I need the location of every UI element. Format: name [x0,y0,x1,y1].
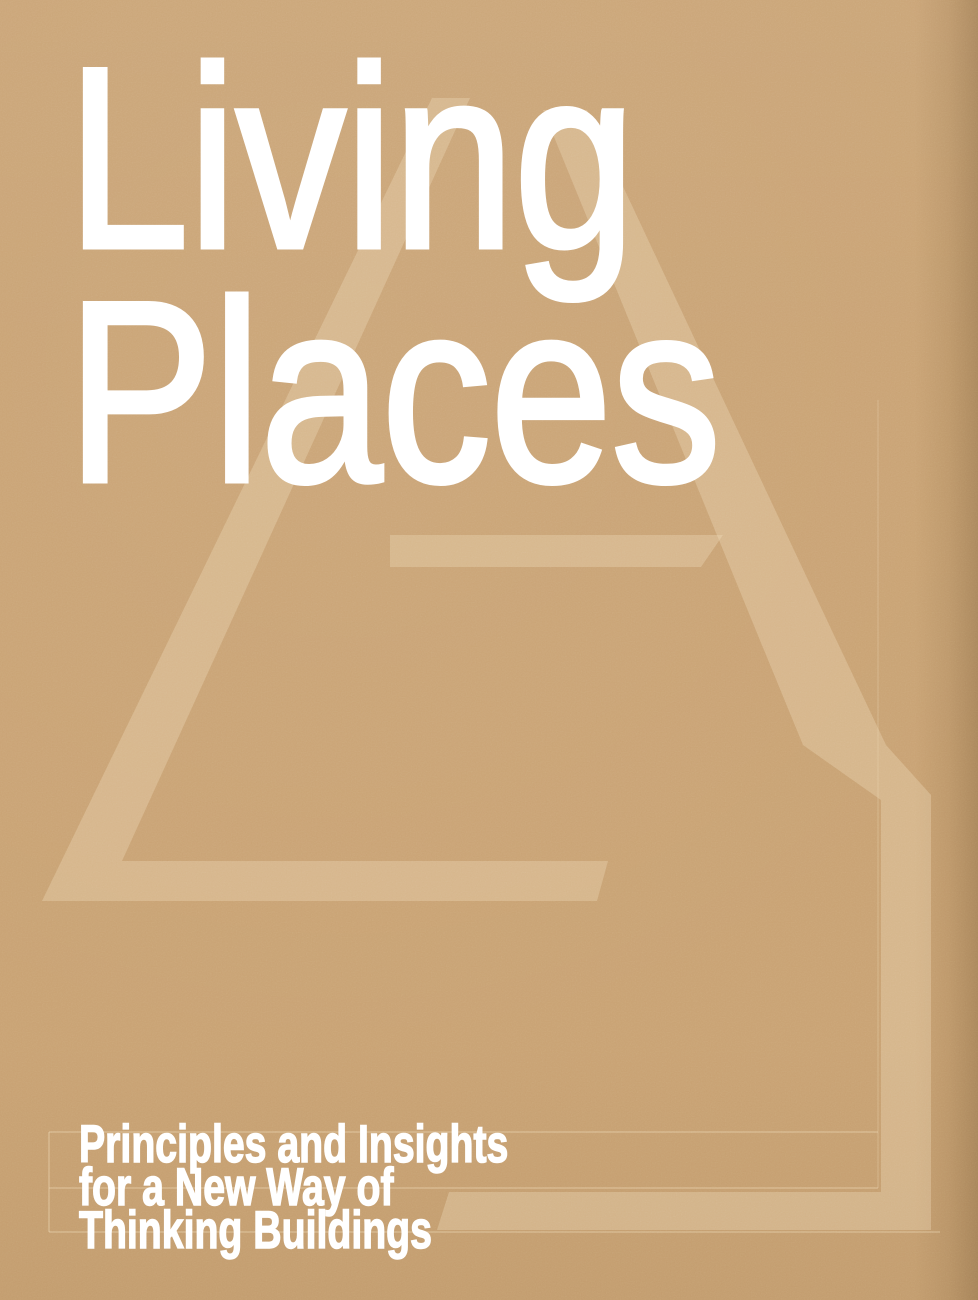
title-line-1: Living [67,41,720,275]
subtitle: Principles and Insights for a New Way of… [79,1123,508,1252]
title-line-2: Places [67,275,720,509]
book-cover: Living Places Principles and Insights fo… [0,0,978,1300]
subtitle-line-3: Thinking Buildings [79,1209,508,1252]
page-title: Living Places [67,41,720,509]
